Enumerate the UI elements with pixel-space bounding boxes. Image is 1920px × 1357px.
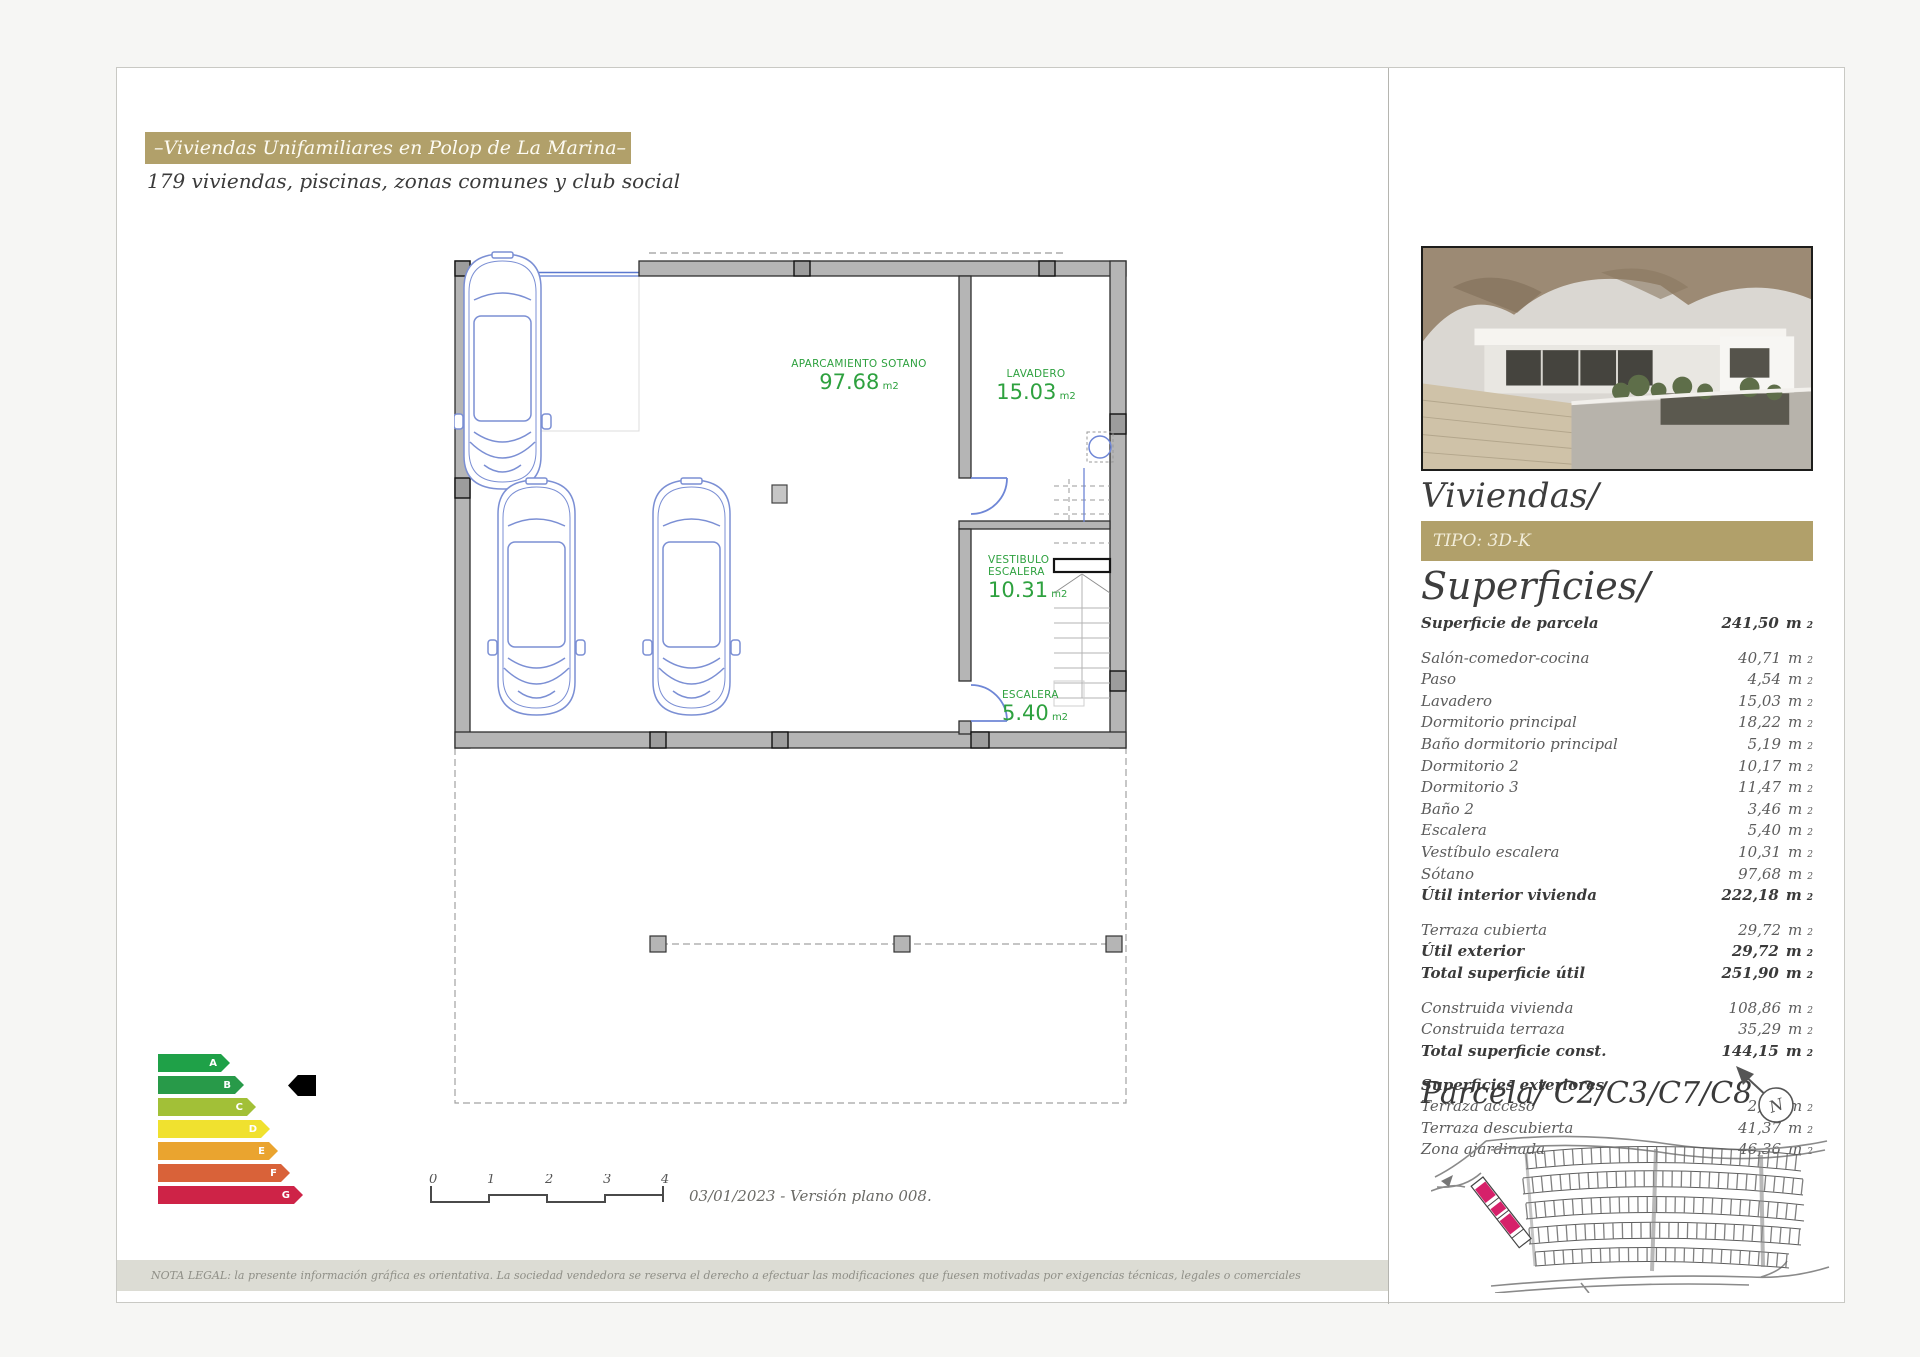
legal-strip: NOTA LEGAL: la presente información gráf…: [117, 1260, 1388, 1291]
project-title: –Viviendas Unifamiliares en Polop de La …: [145, 137, 626, 159]
parcela-codes: C2/C3/C7/C8: [1544, 1076, 1752, 1111]
superficies-row: Construida terraza35,29m2: [1421, 1020, 1813, 1042]
staircase: [1054, 479, 1110, 706]
superficies-row: Paso4,54m2: [1421, 670, 1813, 692]
energy-grade-b: B: [158, 1076, 244, 1094]
superficies-row: Dormitorio 311,47m2: [1421, 778, 1813, 800]
washing-machine: [1084, 432, 1113, 522]
car-1: [488, 478, 585, 715]
superficies-group: Superficie de parcela241,50m2: [1421, 614, 1813, 636]
sidebar-divider: [1388, 68, 1389, 1304]
plan-sheet: –Viviendas Unifamiliares en Polop de La …: [116, 67, 1845, 1303]
energy-rating-chart: ABCDEFG: [158, 1054, 368, 1214]
scale-tick-label: 2: [544, 1174, 553, 1187]
energy-grade-a: A: [158, 1054, 230, 1072]
superficies-row: Terraza cubierta29,72m2: [1421, 921, 1813, 943]
superficies-group: Construida vivienda108,86m2Construida te…: [1421, 999, 1813, 1064]
site-plan-map: [1431, 1131, 1831, 1293]
door-swings: [971, 478, 1007, 721]
scale-tick-label: 0: [429, 1174, 437, 1187]
superficies-row: Total superficie const.144,15m2: [1421, 1042, 1813, 1064]
superficies-row: Construida vivienda108,86m2: [1421, 999, 1813, 1021]
superficies-title: Superficies/: [1421, 564, 1650, 608]
scale-tick-label: 4: [660, 1174, 669, 1187]
project-subtitle: 179 viviendas, piscinas, zonas comunes y…: [147, 169, 680, 193]
north-arrow-icon: N: [1726, 1063, 1810, 1129]
superficies-row: Útil interior vivienda222,18m2: [1421, 886, 1813, 908]
superficies-row: Total superficie útil251,90m2: [1421, 964, 1813, 986]
superficies-row: Dormitorio 210,17m2: [1421, 757, 1813, 779]
highlighted-parcels: [1471, 1177, 1531, 1248]
date-version: 03/01/2023 - Versión plano 008.: [689, 1187, 932, 1205]
tipo-bar: TIPO: 3D-K: [1421, 521, 1813, 561]
superficies-row: Escalera5,40m2: [1421, 821, 1813, 843]
energy-grade-g: G: [158, 1186, 303, 1204]
superficies-row: Vestíbulo escalera10,31m2: [1421, 843, 1813, 865]
energy-grade-f: F: [158, 1164, 290, 1182]
energy-grade-c: C: [158, 1098, 256, 1116]
sidebar-title: Viviendas/: [1421, 476, 1599, 516]
project-title-bar: –Viviendas Unifamiliares en Polop de La …: [145, 132, 631, 164]
energy-rating-pointer: [288, 1075, 316, 1096]
scale-tick-label: 3: [603, 1174, 611, 1187]
energy-grade-e: E: [158, 1142, 278, 1160]
legal-note: NOTA LEGAL: la presente información gráf…: [117, 1269, 1301, 1282]
scale-bar: 01234: [429, 1174, 679, 1208]
car-2: [643, 478, 740, 715]
garage-pillar: [772, 485, 787, 503]
tipo-label: TIPO: 3D-K: [1421, 531, 1531, 551]
document-canvas: –Viviendas Unifamiliares en Polop de La …: [0, 0, 1920, 1357]
superficies-row: Salón-comedor-cocina40,71m2: [1421, 649, 1813, 671]
roads: [1431, 1136, 1829, 1293]
superficies-row: Dormitorio principal18,22m2: [1421, 713, 1813, 735]
superficies-group: Terraza cubierta29,72m2Útil exterior29,7…: [1421, 921, 1813, 986]
superficies-row: Superficie de parcela241,50m2: [1421, 614, 1813, 636]
dashed-terrace-outline: [455, 748, 1126, 1103]
superficies-group: Salón-comedor-cocina40,71m2Paso4,54m2Lav…: [1421, 649, 1813, 908]
superficies-row: Baño dormitorio principal5,19m2: [1421, 735, 1813, 757]
lot-bands: [1523, 1146, 1804, 1271]
superficies-row: Lavadero15,03m2: [1421, 692, 1813, 714]
superficies-row: Sótano97,68m2: [1421, 865, 1813, 887]
energy-grade-d: D: [158, 1120, 270, 1138]
superficies-row: Útil exterior29,72m2: [1421, 942, 1813, 964]
car-icon: [454, 252, 551, 489]
parcela-label: Parcela/: [1421, 1076, 1544, 1111]
floor-plan-drawing: [454, 246, 1127, 1106]
house-render-photo: [1421, 246, 1813, 471]
scale-tick-label: 1: [487, 1174, 495, 1187]
parcela-line: Parcela/ C2/C3/C7/C8: [1421, 1076, 1752, 1111]
superficies-row: Baño 23,46m2: [1421, 800, 1813, 822]
